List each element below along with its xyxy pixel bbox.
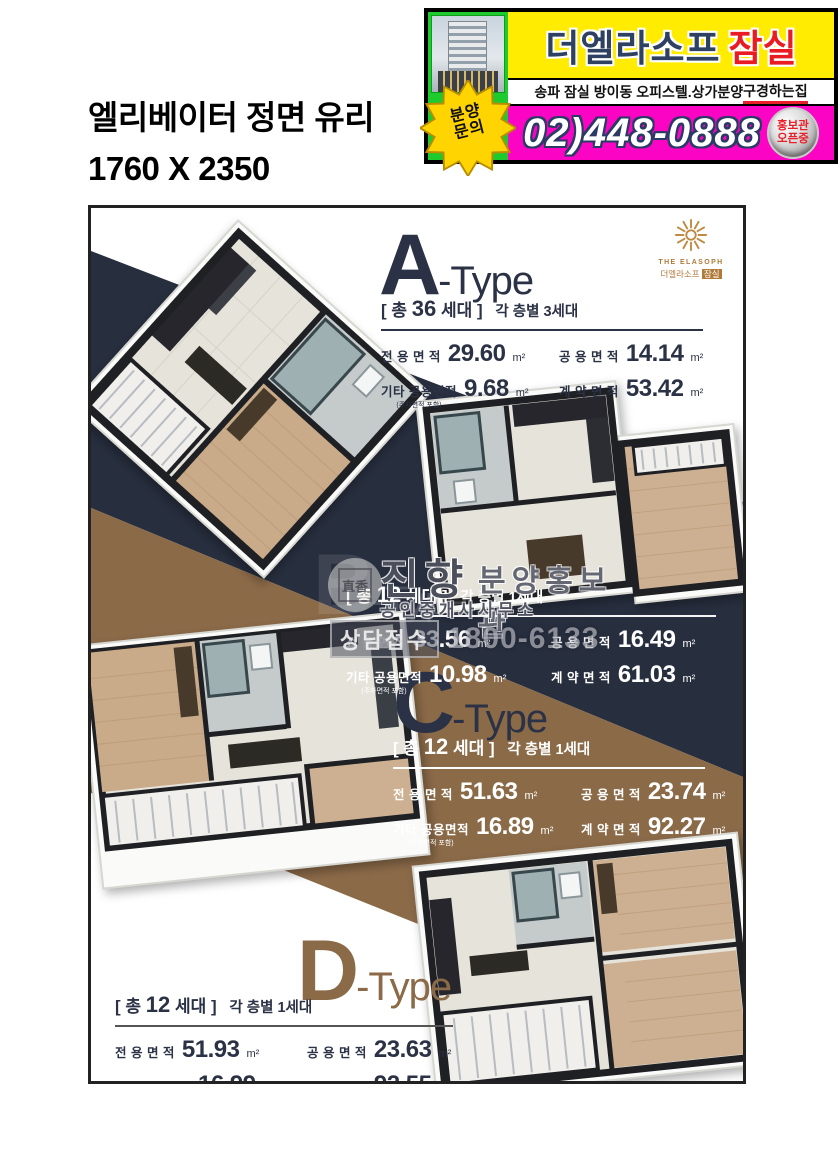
- area-cell: 계 약 면 적 53.42 m²: [559, 375, 711, 410]
- logo-name-kr: 더엘라소프 잠실: [651, 268, 731, 280]
- area-cell: 전 용 면 적 29.60 m²: [381, 340, 559, 368]
- divider: [115, 1025, 453, 1027]
- type-a-info: [ 총 36 세대 ] 각 층별 3세대 전 용 면 적 29.60 m² 공 …: [381, 296, 711, 410]
- promo-badge: 홍보관 오픈중: [767, 107, 819, 159]
- size-title-line1: 엘리베이터 정면 유리: [88, 92, 374, 143]
- phone-band: 02)448-0888 홍보관 오픈중: [508, 106, 834, 160]
- area-cell: 기타 공용면적(주차면적 포함) 16.89 m²: [393, 813, 581, 848]
- banner-right-panel: 더엘라소프 잠실 송파 잠실 방이동 오피스텔.상가분양 구경하는집 02)44…: [508, 12, 834, 160]
- banner-left-panel: 분양 문의: [428, 12, 508, 160]
- type-c-units: [ 총 12 세대 ] 각 층별 1세대: [393, 734, 723, 760]
- agency-watermark: 直香 진향 분양홍보관 공인중개사사무소 상담접수 1800-6133: [328, 552, 638, 672]
- area-cell: 기타 공용면적(주차면적 포함) 9.68 m²: [381, 375, 559, 410]
- area-cell: 기타 공용면적(주차면적 포함) 16.99 m²: [115, 1071, 307, 1084]
- seal-text: 直香: [338, 568, 372, 602]
- badge-line1: 홍보관: [777, 120, 809, 133]
- brand-location: 잠실: [729, 18, 797, 72]
- size-title-line2: 1760 X 2350: [88, 143, 374, 194]
- logo-name-en: THE ELASOPH: [651, 259, 731, 266]
- brand-band: 더엘라소프 잠실: [508, 12, 834, 80]
- area-cell: 전 용 면 적 51.93 m²: [115, 1036, 307, 1064]
- subtitle-highlight: 구경하는집: [743, 81, 807, 104]
- print-size-title: 엘리베이터 정면 유리 1760 X 2350: [88, 92, 374, 194]
- contact-phone: 1800-6133: [447, 622, 599, 656]
- poster-brand-logo: THE ELASOPH 더엘라소프 잠실: [651, 218, 731, 280]
- agency-type: 공인중개사사무소: [380, 596, 537, 621]
- type-c-areas: 전 용 면 적 51.63 m² 공 용 면 적 23.74 m² 기타 공용면…: [393, 778, 723, 848]
- type-a-areas: 전 용 면 적 29.60 m² 공 용 면 적 14.14 m² 기타 공용면…: [381, 340, 711, 410]
- floorplan-poster: THE ELASOPH 더엘라소프 잠실: [88, 205, 746, 1084]
- floorplan-d: [412, 832, 746, 1084]
- type-d-info: [ 총 12 세대 ] 각 층별 1세대 전 용 면 적 51.93 m² 공 …: [115, 992, 460, 1084]
- area-cell: 공 용 면 적 23.74 m²: [581, 778, 725, 806]
- area-cell: 계 약 면 적 92.27 m²: [581, 813, 725, 848]
- building-tower-graphic: [448, 21, 487, 73]
- divider: [381, 329, 703, 331]
- logo-kr-tag: 잠실: [702, 269, 722, 279]
- area-cell: 공 용 면 적 23.63 m²: [307, 1036, 460, 1064]
- agency-contact: 상담접수 1800-6133: [330, 620, 599, 658]
- area-cell: 전 용 면 적 51.63 m²: [393, 778, 581, 806]
- type-c-info: [ 총 12 세대 ] 각 층별 1세대 전 용 면 적 51.63 m² 공 …: [393, 734, 723, 848]
- area-cell: 계 약 면 적 92.55 m²: [307, 1071, 460, 1084]
- area-cell: 공 용 면 적 14.14 m²: [559, 340, 711, 368]
- subtitle-band: 송파 잠실 방이동 오피스텔.상가분양 구경하는집: [508, 80, 834, 106]
- phone-number: 02)448-0888: [523, 111, 761, 156]
- type-a-units: [ 총 36 세대 ] 각 층별 3세대: [381, 296, 711, 322]
- contact-label: 상담접수: [330, 620, 439, 658]
- badge-line2: 오픈중: [777, 133, 809, 146]
- brand-name: 더엘라소프: [545, 18, 720, 72]
- inquiry-burst: 분양 문의: [420, 80, 516, 166]
- type-d-areas: 전 용 면 적 51.93 m² 공 용 면 적 23.63 m² 기타 공용면…: [115, 1036, 460, 1084]
- subtitle-text: 송파 잠실 방이동 오피스텔.상가분양: [534, 82, 743, 102]
- type-d-units: [ 총 12 세대 ] 각 층별 1세대: [115, 992, 460, 1018]
- ad-banner: 분양 문의 더엘라소프 잠실 송파 잠실 방이동 오피스텔.상가분양 구경하는집…: [424, 8, 838, 164]
- agency-seal-icon: 直香: [328, 558, 382, 612]
- sun-logo-icon: [674, 218, 708, 252]
- divider: [393, 767, 705, 769]
